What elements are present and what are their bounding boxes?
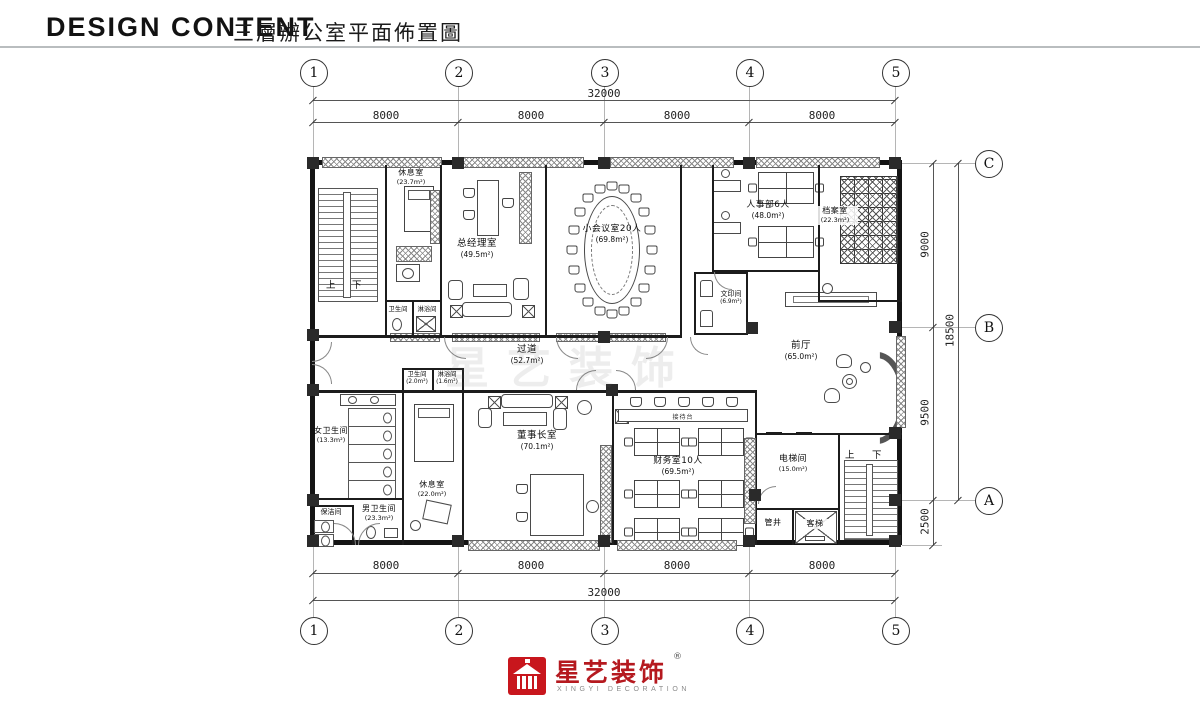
conference-chair — [574, 208, 585, 217]
dim-bay3-top: 8000 — [647, 109, 707, 122]
stair-down-label: 下 — [872, 447, 882, 461]
grid-line — [313, 545, 314, 617]
chair — [678, 397, 690, 407]
grid-bubble-B: B — [975, 314, 1003, 342]
room-label-archive: 档案室 (22.3m²) — [812, 206, 858, 225]
room-label-corridor: 过道 (52.7m²) — [504, 344, 550, 366]
conference-chair — [645, 265, 656, 274]
armchair — [513, 278, 529, 300]
toilet — [392, 318, 402, 331]
cabinet-hatch — [744, 438, 756, 524]
window-hatch — [896, 336, 906, 428]
office-chair — [463, 210, 475, 220]
column-marker — [889, 427, 901, 439]
chair — [630, 397, 642, 407]
sofa — [462, 302, 512, 317]
dim-seg-cb: 9000 — [919, 225, 932, 265]
column-marker — [743, 157, 755, 169]
conference-chair — [594, 306, 605, 315]
logo-name-zh: 星艺装饰 — [555, 653, 667, 689]
dim-right-total: 18500 — [944, 309, 957, 353]
room-label-shaft: 管井 — [754, 518, 792, 528]
urinal — [384, 528, 398, 538]
guest-chair — [516, 484, 528, 494]
grid-bubble-3-top: 3 — [591, 59, 619, 87]
executive-desk — [530, 474, 584, 536]
column-marker — [307, 157, 319, 169]
reception-counter-label: 接待台 — [618, 412, 748, 421]
plant — [860, 362, 871, 373]
stair-up-label: 上 — [845, 447, 855, 461]
column-marker — [598, 157, 610, 169]
room-label-gm: 总经理室 (49.5m²) — [446, 238, 508, 260]
office-chair — [721, 169, 730, 178]
room-label-print: 文印间 (6.9m²) — [714, 290, 748, 307]
room-label-rest-top: 休息室 (23.7m²) — [386, 168, 436, 187]
company-logo: 星艺装饰 ® XINGYI DECORATION — [508, 652, 718, 706]
fan — [577, 400, 592, 415]
conference-chair — [583, 194, 594, 203]
stair-up-label: 上 — [326, 277, 336, 291]
conference-chair — [639, 208, 650, 217]
dim-bay1-bottom: 8000 — [356, 559, 416, 572]
dim-bay4-bottom: 8000 — [792, 559, 852, 572]
sink-basin — [370, 396, 379, 404]
chair — [702, 397, 714, 407]
sink-basin — [348, 396, 357, 404]
wall — [818, 300, 902, 302]
dim-bay2-bottom: 8000 — [501, 559, 561, 572]
column-marker — [889, 535, 901, 547]
wall — [310, 390, 757, 393]
grid-bubble-1-top: 1 — [300, 59, 328, 87]
room-label-lobby: 前厅 (65.0m²) — [778, 340, 824, 362]
chair — [410, 520, 421, 531]
armchair — [478, 408, 492, 428]
dim-bay3-bottom: 8000 — [647, 559, 707, 572]
column-marker — [606, 384, 618, 396]
desk — [713, 180, 741, 192]
wall — [612, 392, 614, 545]
room-label-rest-bottom: 休息室 (22.0m²) — [404, 480, 460, 499]
room-label-wc-small: 卫生间 (2.0m²) — [403, 371, 431, 387]
dim-line-total-bottom — [313, 600, 895, 601]
guest-chair — [516, 512, 528, 522]
grid-bubble-2-bottom: 2 — [445, 617, 473, 645]
column-marker — [746, 322, 758, 334]
elevator-door-mark — [766, 432, 782, 434]
conference-chair — [574, 283, 585, 292]
stair-rail — [343, 192, 351, 298]
chair — [654, 397, 666, 407]
office-chair — [502, 198, 514, 208]
side-table — [488, 396, 501, 409]
column-marker — [452, 157, 464, 169]
workstation-cluster — [698, 480, 744, 508]
grid-bubble-C: C — [975, 150, 1003, 178]
chair — [822, 283, 833, 294]
cabinet-hatch — [600, 445, 612, 543]
shower-tray — [416, 316, 436, 332]
grid-line — [604, 545, 605, 617]
design-slide: { "header": { "title_en": "DESIGN CONTEN… — [0, 0, 1200, 714]
dim-line-right-segments — [933, 163, 934, 545]
dim-bay1-top: 8000 — [356, 109, 416, 122]
room-label-chairman: 董事长室 (70.1m²) — [506, 430, 568, 452]
conference-chair — [594, 185, 605, 194]
wall — [310, 498, 402, 500]
cabinet-hatch — [430, 190, 440, 244]
desk — [477, 180, 499, 236]
workstation-cluster — [698, 428, 744, 456]
room-label-meeting: 小会议室20人 (69.8m²) — [570, 224, 654, 245]
grid-bubble-A: A — [975, 487, 1003, 515]
tub-chair — [836, 354, 852, 368]
toilet-stall — [348, 408, 396, 428]
workstation-cluster — [634, 428, 680, 456]
window-hatch — [617, 540, 737, 551]
wall — [712, 165, 714, 272]
column-marker — [307, 329, 319, 341]
room-label-cleaning: 保洁间 — [314, 508, 348, 517]
stair-down-label: 下 — [352, 277, 362, 291]
grid-line — [458, 545, 459, 617]
stair-rail — [866, 464, 873, 536]
wall — [755, 508, 838, 510]
room-label-hr: 人事部6人 (48.0m²) — [738, 200, 798, 221]
room-label-shower-small: 淋浴间 (1.6m²) — [433, 371, 461, 387]
coffee-table — [503, 412, 547, 426]
conference-chair — [619, 185, 630, 194]
column-marker — [307, 384, 319, 396]
wall — [680, 165, 682, 335]
column-marker — [307, 494, 319, 506]
workstation-cluster — [758, 226, 814, 258]
window-hatch — [468, 540, 600, 551]
armchair — [553, 408, 567, 430]
elevator-sill — [805, 536, 825, 541]
conference-chair — [619, 306, 630, 315]
grid-line — [902, 545, 942, 546]
room-label-men-wc: 男卫生间 (23.3m²) — [354, 504, 404, 523]
dim-seg-a-edge: 2500 — [919, 502, 932, 542]
conference-chair — [607, 310, 618, 319]
cabinet-hatch — [519, 172, 532, 244]
conference-chair — [630, 297, 641, 306]
page-title-zh: 三層辦公室平面佈置圖 — [233, 17, 463, 47]
grid-bubble-3-bottom: 3 — [591, 617, 619, 645]
wall — [838, 433, 840, 545]
grid-line — [902, 163, 975, 164]
toilet-stall — [348, 480, 396, 500]
grid-bubble-1-bottom: 1 — [300, 617, 328, 645]
logo-name-en: XINGYI DECORATION — [557, 686, 690, 693]
dim-total-bottom: 32000 — [574, 586, 634, 599]
cabinet-hatch — [396, 246, 432, 262]
conference-chair — [607, 182, 618, 191]
column-marker — [743, 535, 755, 547]
conference-chair — [630, 194, 641, 203]
conference-chair — [568, 265, 579, 274]
dim-line-total-top — [313, 100, 895, 101]
column-marker — [889, 321, 901, 333]
column-marker — [889, 494, 901, 506]
grid-bubble-4-top: 4 — [736, 59, 764, 87]
room-label-shower-top: 淋浴间 — [413, 306, 441, 314]
logo-registered-mark: ® — [673, 652, 682, 662]
header-divider — [0, 46, 1200, 48]
tub-chair — [824, 388, 840, 403]
column-marker — [598, 535, 610, 547]
grid-line — [749, 545, 750, 617]
room-label-lift: 客梯 — [798, 519, 832, 529]
desk — [713, 222, 741, 234]
window-hatch — [610, 157, 734, 168]
chair — [726, 397, 738, 407]
column-marker — [452, 535, 464, 547]
side-table — [450, 305, 463, 318]
conference-chair — [647, 246, 658, 255]
side-table — [522, 305, 535, 318]
office-chair — [463, 188, 475, 198]
toilet-stall — [348, 444, 396, 464]
wall — [792, 508, 794, 545]
cleaning-sink — [314, 520, 334, 533]
dim-total-top: 32000 — [574, 87, 634, 100]
dim-bay2-top: 8000 — [501, 109, 561, 122]
grid-bubble-5-top: 5 — [882, 59, 910, 87]
workstation-cluster — [634, 480, 680, 508]
wall — [310, 335, 682, 338]
bed — [414, 404, 454, 462]
elevator-door-mark — [796, 432, 812, 434]
column-marker — [307, 535, 319, 547]
toilet-stall — [348, 426, 396, 446]
logo-house-icon — [508, 657, 546, 695]
sink-basin — [402, 268, 414, 279]
window-hatch — [322, 157, 442, 168]
column-marker — [889, 157, 901, 169]
sofa — [501, 394, 553, 408]
conference-chair — [567, 246, 578, 255]
office-chair — [721, 211, 730, 220]
grid-line — [895, 545, 896, 617]
wall — [818, 165, 820, 300]
coffee-table — [473, 284, 507, 297]
printer — [700, 310, 713, 327]
conference-chairs — [572, 186, 652, 314]
armchair — [448, 280, 463, 300]
room-label-finance: 财务室10人 (69.5m²) — [646, 456, 710, 477]
room-label-elev-hall: 电梯间 (15.0m²) — [762, 454, 824, 474]
column-marker — [598, 331, 610, 343]
grid-bubble-2-top: 2 — [445, 59, 473, 87]
grid-line — [902, 500, 975, 501]
printer — [700, 280, 713, 297]
toilet-stall — [348, 462, 396, 482]
conference-chair — [639, 283, 650, 292]
grid-bubble-5-bottom: 5 — [882, 617, 910, 645]
round-table-inner — [846, 378, 853, 385]
room-label-wc-top: 卫生间 — [384, 306, 412, 314]
window-hatch — [462, 157, 584, 168]
dim-bay4-top: 8000 — [792, 109, 852, 122]
grid-bubble-4-bottom: 4 — [736, 617, 764, 645]
executive-chair — [586, 500, 599, 513]
column-marker — [749, 489, 761, 501]
room-label-women-wc: 女卫生间 (13.3m²) — [308, 426, 354, 445]
wall — [462, 368, 464, 545]
dim-line-right-total — [958, 163, 959, 500]
wall — [545, 165, 547, 335]
conference-chair — [583, 297, 594, 306]
dim-seg-ba: 9500 — [919, 393, 932, 433]
grid-line — [902, 327, 975, 328]
